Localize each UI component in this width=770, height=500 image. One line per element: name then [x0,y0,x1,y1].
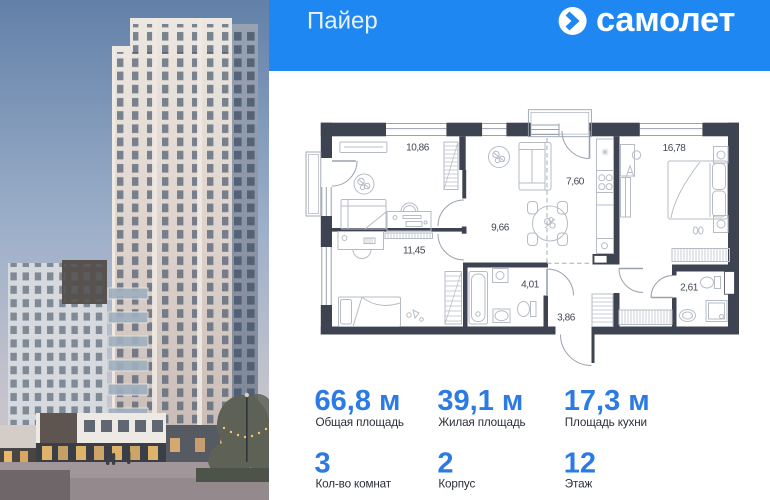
svg-text:7,60: 7,60 [566,177,585,188]
svg-text:3,86: 3,86 [557,313,576,324]
svg-text:2: 2 [437,448,453,480]
svg-text:39,1 м: 39,1 м [437,385,523,417]
svg-text:Кол-во комнат: Кол-во комнат [316,477,392,490]
svg-text:66,8 м: 66,8 м [315,385,401,417]
svg-text:Пайер: Пайер [307,8,378,35]
svg-text:12: 12 [564,448,596,480]
svg-text:11,45: 11,45 [403,246,426,257]
svg-text:10,86: 10,86 [406,143,430,154]
svg-text:Общая площадь: Общая площадь [316,416,404,429]
svg-text:2,61: 2,61 [680,283,699,294]
svg-text:Жилая площадь: Жилая площадь [438,416,525,429]
svg-text:4,01: 4,01 [521,280,540,291]
svg-text:Площадь кухни: Площадь кухни [565,416,647,429]
svg-text:Этаж: Этаж [565,477,593,490]
svg-text:17,3 м: 17,3 м [564,385,650,417]
svg-text:3: 3 [315,448,331,480]
svg-text:Корпус: Корпус [438,477,475,490]
svg-text:16,78: 16,78 [663,143,687,154]
svg-text:9,66: 9,66 [491,223,510,234]
svg-text:самолет: самолет [596,1,735,39]
